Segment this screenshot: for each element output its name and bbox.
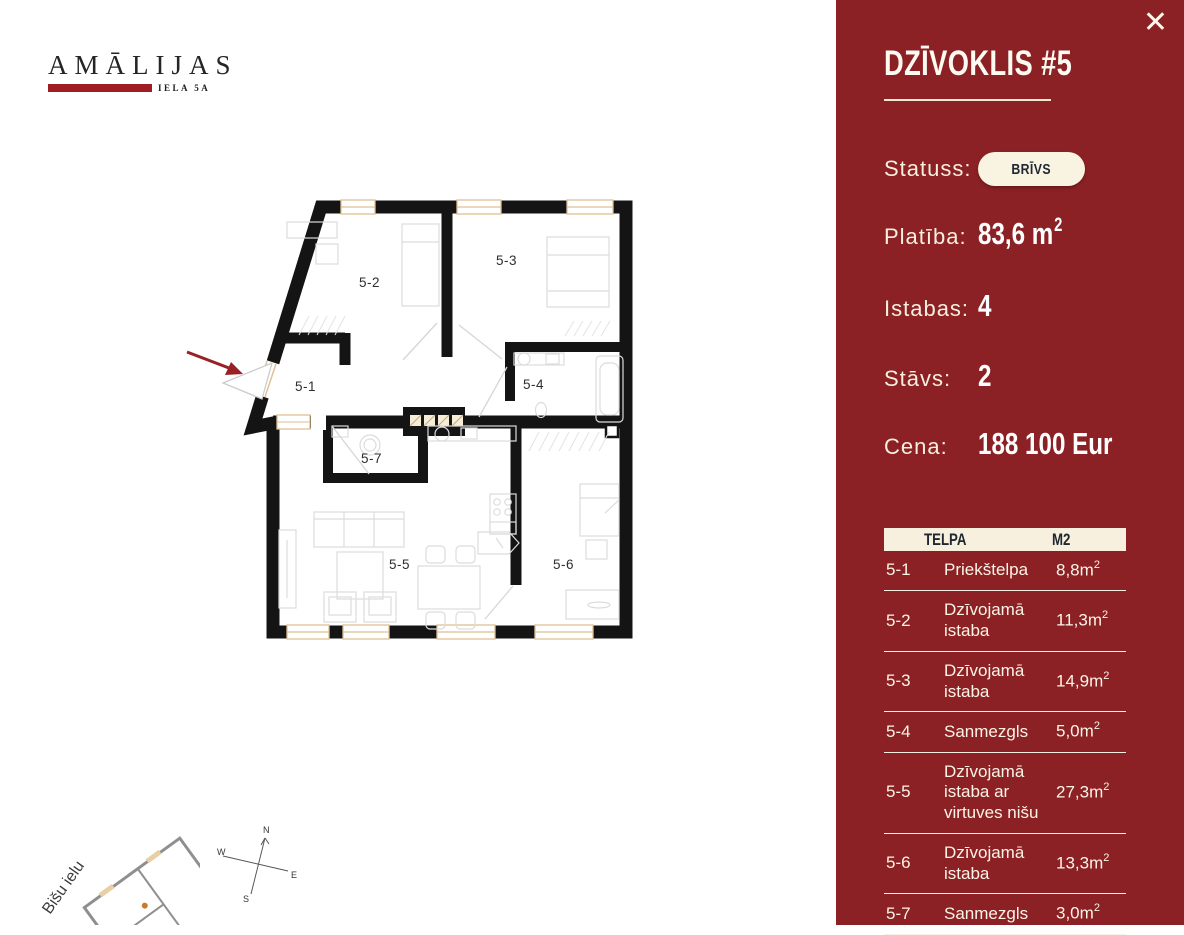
logo-accent-bar — [48, 84, 152, 92]
vent-shaft — [403, 407, 465, 436]
area-label: Platība: — [884, 224, 978, 250]
table-header-telpa: TELPA — [924, 530, 966, 550]
site-plan-building — [80, 836, 200, 925]
compass-north-label: N — [263, 825, 270, 835]
table-header-m2: M2 — [1052, 530, 1070, 550]
room-label-5-1: 5-1 — [295, 379, 316, 394]
area-field: Platība: 83,6 m2 — [884, 216, 1086, 252]
rooms-table: TELPA M2 5-1 Priekštelpa 8,8m2 5-2 Dzīvo… — [884, 528, 1126, 935]
floor-field: Stāvs: 2 — [884, 358, 995, 394]
logo: AMĀLIJAS IELA 5A — [48, 50, 238, 93]
table-row: 5-2 Dzīvojamā istaba 11,3m2 — [884, 591, 1126, 651]
close-icon[interactable]: ✕ — [1143, 8, 1168, 38]
rooms-field: Istabas: 4 — [884, 288, 995, 324]
room-label-5-2: 5-2 — [359, 275, 380, 290]
entry-arrow-icon — [187, 352, 243, 375]
price-value: 188 100 Eur — [978, 426, 1150, 462]
compass-south-label: S — [243, 894, 249, 904]
room-label-5-7: 5-7 — [361, 451, 382, 466]
area-value: 83,6 m2 — [978, 216, 1086, 252]
title-underline — [884, 99, 1051, 101]
page-title: DZĪVOKLIS #5 — [884, 44, 1125, 84]
floor-label: Stāvs: — [884, 366, 978, 392]
floor-value: 2 — [978, 358, 995, 394]
table-row: 5-5 Dzīvojamā istaba ar virtuves nišu 27… — [884, 753, 1126, 834]
apartment-detail-panel: ✕ DZĪVOKLIS #5 Statuss: BRĪVS Platība: 8… — [836, 0, 1184, 925]
compass-east-label: E — [291, 870, 297, 880]
status-badge-text: BRĪVS — [1012, 161, 1052, 178]
compass-rose: N W E S — [205, 812, 315, 907]
door-gap — [311, 414, 326, 430]
table-row: 5-6 Dzīvojamā istaba 13,3m2 — [884, 834, 1126, 894]
price-label: Cena: — [884, 434, 978, 460]
room-label-5-6: 5-6 — [553, 557, 574, 572]
room-label-5-3: 5-3 — [496, 253, 517, 268]
table-row: 5-3 Dzīvojamā istaba 14,9m2 — [884, 652, 1126, 712]
site-plan: Bišu ielu — [0, 795, 200, 925]
street-label: Bišu ielu — [39, 858, 88, 917]
logo-title: AMĀLIJAS — [48, 50, 238, 81]
table-row: 5-7 Sanmezgls 3,0m2 — [884, 894, 1126, 934]
table-row: 5-4 Sanmezgls 5,0m2 — [884, 712, 1126, 752]
rooms-value: 4 — [978, 288, 995, 324]
rooms-label: Istabas: — [884, 296, 978, 322]
room-label-5-5: 5-5 — [389, 557, 410, 572]
logo-subtitle-row: IELA 5A — [48, 83, 238, 93]
room-label-5-4: 5-4 — [523, 377, 544, 392]
status-badge: BRĪVS — [978, 152, 1085, 186]
logo-subtitle: IELA 5A — [158, 83, 210, 93]
floor-plan: 5-1 5-2 5-3 5-4 5-5 5-6 5-7 — [175, 195, 645, 665]
status-label: Statuss: — [884, 156, 978, 182]
table-row: 5-1 Priekštelpa 8,8m2 — [884, 551, 1126, 591]
compass-west-label: W — [217, 847, 226, 857]
status-field: Statuss: BRĪVS — [884, 152, 1085, 186]
price-field: Cena: 188 100 Eur — [884, 426, 1150, 462]
table-header: TELPA M2 — [884, 528, 1126, 551]
